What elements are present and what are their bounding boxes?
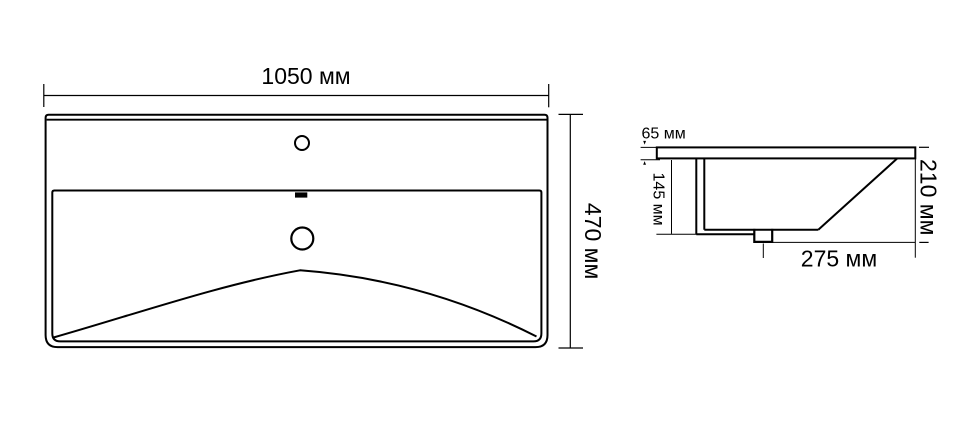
- svg-text:145 мм: 145 мм: [650, 173, 667, 226]
- svg-text:470 мм: 470 мм: [580, 203, 606, 279]
- svg-text:1050 мм: 1050 мм: [261, 63, 350, 89]
- svg-text:210 мм: 210 мм: [916, 159, 942, 235]
- svg-text:275 мм: 275 мм: [801, 246, 877, 272]
- svg-text:65 мм: 65 мм: [642, 125, 686, 142]
